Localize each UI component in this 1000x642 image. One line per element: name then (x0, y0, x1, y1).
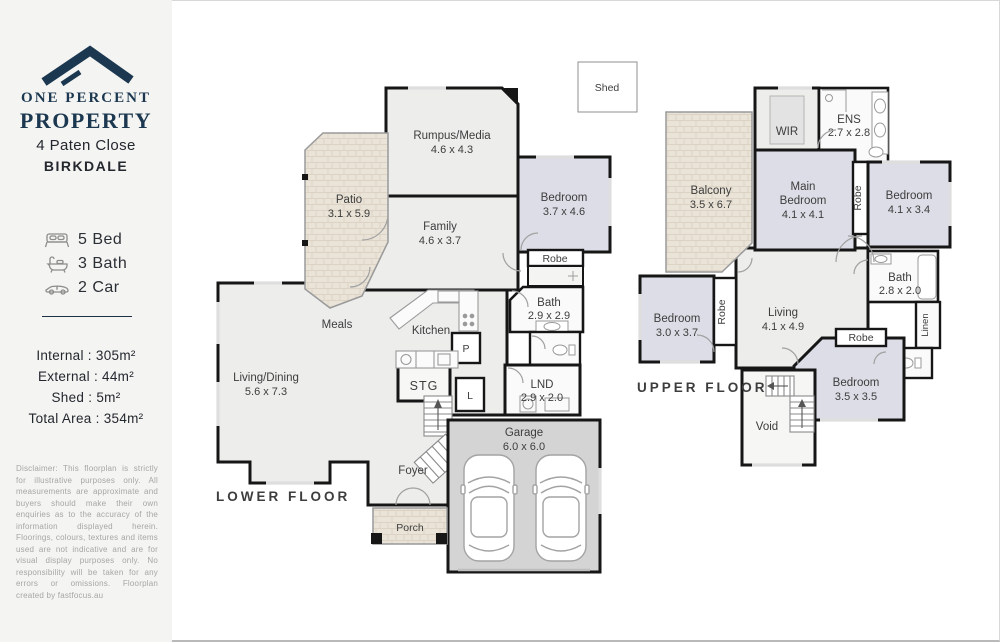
room-rumpus-dims: 4.6 x 4.3 (431, 144, 473, 156)
room-bedroom2-dims: 4.1 x 3.4 (888, 204, 930, 216)
room-porch-label: Porch (396, 522, 424, 534)
room-lower-bedroom: Bedroom 3.7 x 4.6 (518, 157, 610, 252)
upper-floor-plan: Living 4.1 x 4.9 WIR ENS 2.7 x 2.8 Main … (637, 88, 950, 465)
closet-lower-robe-label: Robe (542, 253, 567, 265)
room-shed: Shed (578, 62, 637, 112)
closet-pantry-label: P (462, 343, 469, 355)
closet-upper-linen-label: Linen (920, 313, 931, 336)
room-garage-label: Garage (505, 427, 543, 439)
closet-linen-l-label: L (467, 390, 473, 402)
room-void-label: Void (756, 421, 778, 433)
room-living-dining-dims: 5.6 x 7.3 (245, 386, 287, 398)
upper-floor-title: UPPER FLOOR (637, 380, 768, 395)
room-ens-dims: 2.7 x 2.8 (828, 127, 870, 139)
room-garage-dims: 6.0 x 6.0 (503, 441, 545, 453)
room-bedroom3-dims: 3.0 x 3.7 (656, 327, 698, 339)
room-upper-living-label: Living (768, 307, 798, 319)
lower-floor-title: LOWER FLOOR (216, 489, 350, 504)
room-main-bedroom: Main Bedroom 4.1 x 4.1 (755, 150, 855, 250)
car-top-view-icon (461, 455, 517, 561)
car-top-view-icon (533, 455, 589, 561)
closet-robe-strip1-label: Robe (852, 185, 864, 210)
room-wir-label: WIR (776, 126, 798, 138)
room-bedroom4-label: Bedroom (833, 377, 880, 389)
toilet-icon (869, 147, 883, 157)
room-bedroom3-label: Bedroom (654, 313, 701, 325)
room-bedroom2-label: Bedroom (886, 190, 933, 202)
room-bedroom3: Bedroom 3.0 x 3.7 (640, 276, 714, 362)
room-upper-bath-dims: 2.8 x 2.0 (879, 285, 921, 297)
closet-linen-l: L (456, 378, 484, 411)
room-bedroom4-dims: 3.5 x 3.5 (835, 391, 877, 403)
room-lnd: LND 2.9 x 2.0 (505, 365, 580, 415)
room-wir: WIR (755, 88, 819, 150)
room-main-bedroom-label1: Main (791, 181, 816, 193)
room-rumpus-label: Rumpus/Media (413, 130, 491, 142)
room-living-dining-label: Living/Dining (233, 372, 299, 384)
room-lower-bath-label: Bath (537, 297, 561, 309)
room-bedroom2: Bedroom 4.1 x 3.4 (868, 162, 950, 247)
room-lower-bath-dims: 2.9 x 2.9 (528, 310, 570, 322)
room-patio-label: Patio (336, 194, 362, 206)
lower-floor-plan: Shed Family 4.6 x 3.7 Rumpus/Media 4.6 x… (216, 62, 637, 572)
closet-robe-strip2-label: Robe (716, 299, 728, 324)
room-main-bedroom-label2: Bedroom (780, 195, 827, 207)
room-garage: Garage 6.0 x 6.0 (448, 420, 600, 572)
floorplan-canvas: Shed Family 4.6 x 3.7 Rumpus/Media 4.6 x… (0, 0, 1000, 642)
room-lower-bedroom-dims: 3.7 x 4.6 (543, 206, 585, 218)
closet-robe-box: Robe (836, 329, 886, 346)
closet-robe-box-label: Robe (848, 332, 873, 344)
closet-lower-robe: Robe (528, 250, 583, 286)
closet-robe-strip2: Robe (714, 278, 736, 345)
room-upper-bath: Bath 2.8 x 2.0 (868, 251, 938, 302)
room-patio-dims: 3.1 x 5.9 (328, 208, 370, 220)
room-meals-label: Meals (322, 319, 353, 331)
room-balcony-label: Balcony (691, 185, 732, 197)
room-main-bedroom-dims: 4.1 x 4.1 (782, 209, 824, 221)
room-kitchen-label: Kitchen (412, 325, 450, 337)
room-balcony: Balcony 3.5 x 6.7 (666, 112, 752, 272)
room-porch: Porch (371, 508, 447, 544)
toilet-icon (553, 345, 567, 355)
room-foyer-label: Foyer (398, 465, 428, 477)
room-rumpus: Rumpus/Media 4.6 x 4.3 (386, 88, 518, 196)
room-lower-bedroom-label: Bedroom (541, 192, 588, 204)
room-lnd-label: LND (530, 379, 553, 391)
room-upper-bath-label: Bath (888, 272, 912, 284)
room-balcony-dims: 3.5 x 6.7 (690, 199, 732, 211)
room-upper-living-dims: 4.1 x 4.9 (762, 321, 804, 333)
room-lnd-dims: 2.9 x 2.0 (521, 392, 563, 404)
room-stg-label: STG (410, 379, 439, 393)
room-family-dims: 4.6 x 3.7 (419, 235, 461, 247)
room-family-label: Family (423, 221, 457, 233)
closet-upper-linen: Linen (916, 302, 940, 348)
room-ens-label: ENS (837, 114, 861, 126)
room-shed-label: Shed (595, 82, 620, 94)
